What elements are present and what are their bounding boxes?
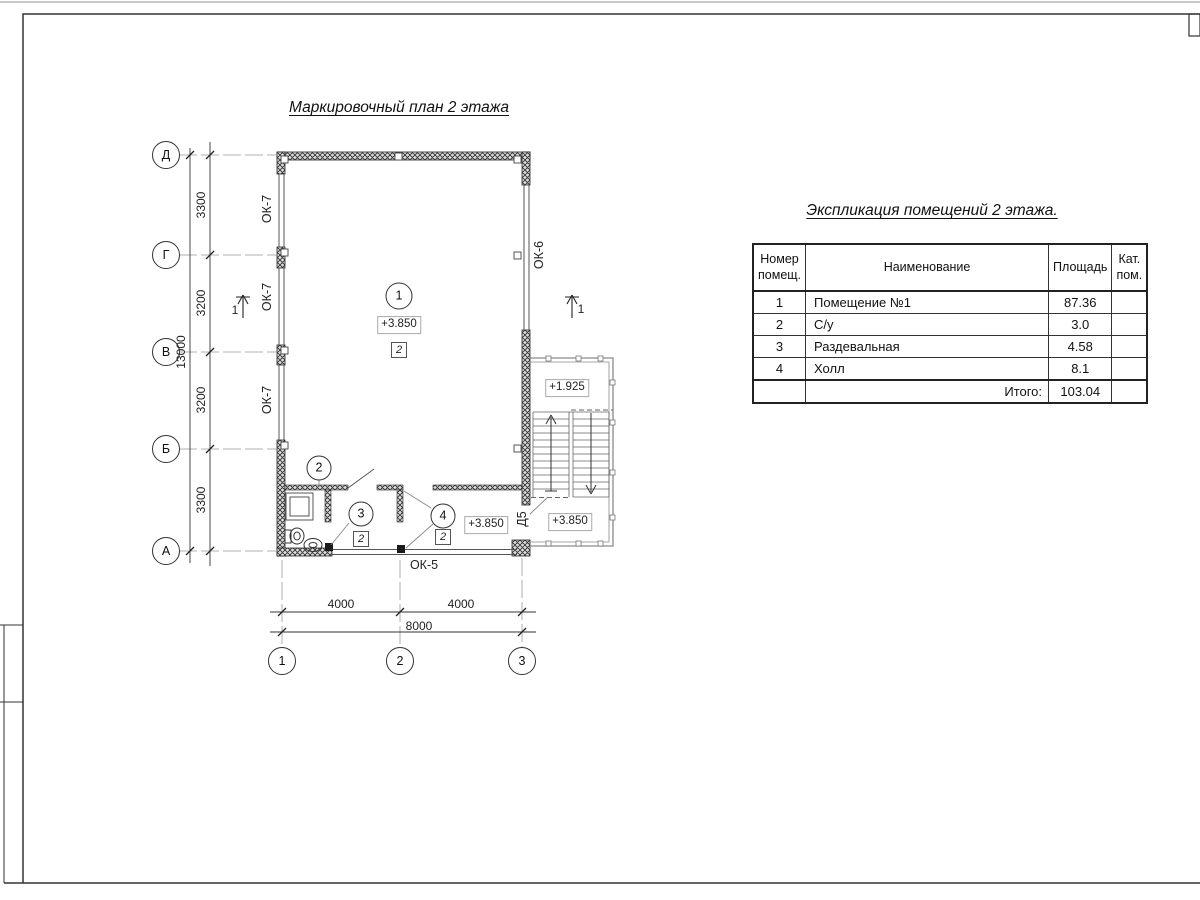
- dim-4000-right: 4000: [448, 598, 475, 610]
- room-name: Помещение №1: [806, 291, 1049, 314]
- dim-4000-left: 4000: [328, 598, 355, 610]
- room-category: [1112, 336, 1147, 358]
- dim-13000-total: 13000: [175, 335, 187, 368]
- table-row: 3 Раздевальная 4.58: [753, 336, 1147, 358]
- dimension-ticks: [186, 151, 526, 636]
- window-label-ok5: ОК-5: [410, 559, 438, 572]
- plan-title: Маркировочный план 2 этажа: [289, 99, 509, 117]
- finish-mark-room4: 2: [435, 529, 451, 545]
- toilet: [285, 528, 304, 544]
- axis-bubble-a: А: [152, 537, 180, 565]
- room-schedule-table: Номер помещ. Наименование Площадь Кат. п…: [752, 243, 1148, 404]
- col-header-category: Кат. пом.: [1112, 244, 1147, 291]
- dim-8000-total: 8000: [406, 620, 433, 632]
- table-row: 2 С/у 3.0: [753, 314, 1147, 336]
- dim-3300-bottom: 3300: [195, 487, 207, 514]
- door-leaf: [348, 469, 374, 488]
- col-header-area: Площадь: [1049, 244, 1112, 291]
- room-area: 87.36: [1049, 291, 1112, 314]
- schedule-title: Экспликация помещений 2 этажа.: [806, 202, 1057, 220]
- room-area: 8.1: [1049, 358, 1112, 381]
- room-category: [1112, 291, 1147, 314]
- door-label-d5: Д5: [516, 511, 529, 526]
- schedule-header-row: Номер помещ. Наименование Площадь Кат. п…: [753, 244, 1147, 291]
- window-label-ok6: ОК-6: [533, 241, 546, 269]
- axis-bubble-g: Г: [152, 241, 180, 269]
- finish-mark-room3: 2: [353, 531, 369, 547]
- drawing-sheet: Маркировочный план 2 этажа Д Г В Б А 1 2…: [0, 0, 1200, 900]
- finish-mark-main: 2: [391, 342, 407, 358]
- total-area: 103.04: [1049, 380, 1112, 403]
- elevation-main: +3.850: [377, 316, 421, 334]
- section-mark-left: 1: [232, 304, 239, 316]
- elevation-hall: +3.850: [464, 516, 508, 534]
- section-mark-right: 1: [578, 303, 585, 315]
- dim-3200-upper: 3200: [195, 290, 207, 317]
- window-lines: [279, 174, 529, 555]
- room-area: 4.58: [1049, 336, 1112, 358]
- axis-bubble-2: 2: [386, 647, 414, 675]
- room-name: Раздевальная: [806, 336, 1049, 358]
- dim-3300-top: 3300: [195, 192, 207, 219]
- total-empty-cell: [753, 380, 806, 403]
- shower-tray: [286, 493, 313, 520]
- sheet-frame: [0, 2, 1200, 883]
- dimension-lines: [190, 142, 536, 632]
- room-name: С/у: [806, 314, 1049, 336]
- room-name: Холл: [806, 358, 1049, 381]
- axis-bubble-d: Д: [152, 141, 180, 169]
- room-number: 3: [753, 336, 806, 358]
- window-label-ok7-top: ОК-7: [261, 195, 274, 223]
- room-category: [1112, 314, 1147, 336]
- floor-plan-linework: [0, 0, 1200, 900]
- room-mark-4: 4: [431, 504, 456, 529]
- total-category-cell: [1112, 380, 1147, 403]
- elevation-stair-mid: +1.925: [545, 379, 589, 397]
- room-number: 1: [753, 291, 806, 314]
- room-category: [1112, 358, 1147, 381]
- window-label-ok7-bottom: ОК-7: [261, 386, 274, 414]
- axis-lines: [179, 155, 522, 648]
- elevation-stair-bottom: +3.850: [548, 513, 592, 531]
- room-number: 4: [753, 358, 806, 381]
- room-mark-3: 3: [349, 502, 374, 527]
- room-mark-1: 1: [386, 283, 413, 310]
- table-row: 4 Холл 8.1: [753, 358, 1147, 381]
- window-label-ok7-mid: ОК-7: [261, 283, 274, 311]
- axis-bubble-b: Б: [152, 435, 180, 463]
- table-total-row: Итого: 103.04: [753, 380, 1147, 403]
- total-label: Итого:: [806, 380, 1049, 403]
- col-header-name: Наименование: [806, 244, 1049, 291]
- col-header-number: Номер помещ.: [753, 244, 806, 291]
- axis-bubble-3: 3: [508, 647, 536, 675]
- room-mark-2: 2: [307, 456, 332, 481]
- stair-flights: [533, 412, 609, 497]
- dim-3200-lower: 3200: [195, 387, 207, 414]
- axis-bubble-1: 1: [268, 647, 296, 675]
- room-area: 3.0: [1049, 314, 1112, 336]
- room-number: 2: [753, 314, 806, 336]
- table-row: 1 Помещение №1 87.36: [753, 291, 1147, 314]
